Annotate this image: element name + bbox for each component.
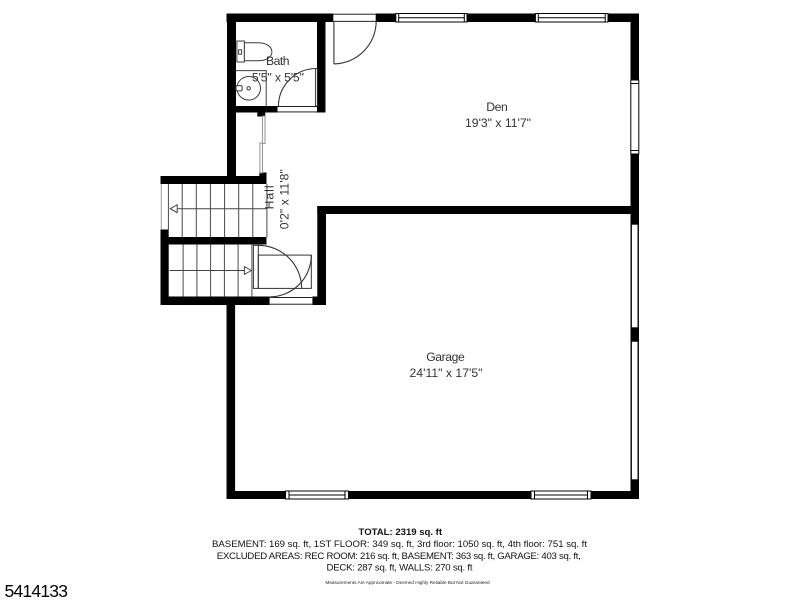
svg-text:DECK: 287 sq. ft, WALLS: 270 s: DECK: 287 sq. ft, WALLS: 270 sq. ft [327, 562, 473, 573]
svg-text:24'11" x 17'5": 24'11" x 17'5" [410, 366, 483, 380]
svg-text:Den: Den [486, 100, 508, 114]
svg-text:19'3" x 11'7": 19'3" x 11'7" [465, 116, 531, 130]
svg-text:BASEMENT: 169 sq. ft, 1ST FLOO: BASEMENT: 169 sq. ft, 1ST FLOOR: 349 sq.… [212, 539, 587, 550]
svg-text:0'2" x 11'8": 0'2" x 11'8" [278, 169, 292, 229]
svg-text:TOTAL: 2319 sq. ft: TOTAL: 2319 sq. ft [359, 527, 443, 538]
svg-text:Hall: Hall [263, 185, 277, 209]
svg-text:5414133: 5414133 [5, 581, 69, 600]
svg-text:5'5" x 5'5": 5'5" x 5'5" [252, 71, 304, 85]
svg-text:Measurements Are Approximate -: Measurements Are Approximate - Deemed Hi… [325, 580, 490, 585]
svg-text:Garage: Garage [426, 350, 465, 364]
svg-text:EXCLUDED AREAS: REC ROOM: 216: EXCLUDED AREAS: REC ROOM: 216 sq. ft, BA… [217, 551, 581, 562]
svg-text:Bath: Bath [266, 54, 290, 68]
